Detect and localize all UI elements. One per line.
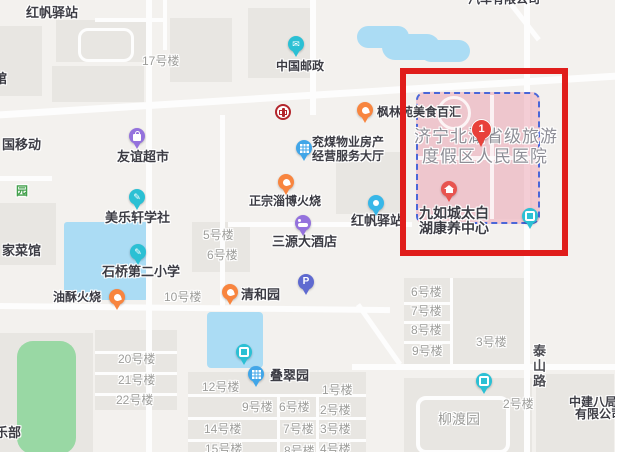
grid-icon [252, 370, 261, 379]
sq-icon [479, 376, 489, 386]
map-label: 1号楼 [322, 384, 353, 398]
sq-icon [239, 347, 249, 357]
map-label: 清和园 [241, 288, 280, 303]
map-label: 7号楼 [411, 305, 442, 319]
map-canvas[interactable]: 红帆驿站17号楼馆中国邮政汽车有限公司枫林苑美食百汇国移动友谊超市兖煤物业房产经… [0, 0, 622, 455]
food-icon [113, 293, 122, 302]
map-label: 兖煤物业房产 [312, 136, 384, 150]
map-label: 9号楼 [242, 401, 273, 415]
boc-icon [282, 108, 285, 117]
bag-icon [133, 134, 141, 141]
map-label: 5号楼 [203, 229, 234, 243]
map-label: 21号楼 [118, 374, 155, 388]
map-label: 6号楼 [207, 249, 238, 263]
grid-icon [300, 144, 309, 153]
dot-icon [373, 200, 379, 206]
highlight-box [400, 68, 568, 256]
map-label: 叠翠园 [270, 369, 309, 384]
map-label: 8号楼 [411, 324, 442, 338]
map-label: 汽车有限公司 [468, 0, 540, 7]
map-label: 3号楼 [320, 423, 351, 437]
map-label: 馆 [0, 72, 7, 87]
road [352, 364, 622, 370]
map-block [170, 18, 232, 82]
map-label: 友谊超市 [117, 150, 169, 165]
env-icon: ✉ [292, 40, 300, 49]
map-label: 园 [16, 185, 28, 199]
food-icon [282, 178, 291, 187]
pond [207, 312, 263, 368]
map-label: 中国邮政 [276, 60, 324, 74]
map-label: 乐部 [0, 426, 21, 441]
map-label: 6号楼 [279, 401, 310, 415]
map-label: 7号楼 [283, 423, 314, 437]
food-icon [226, 288, 235, 297]
map-label: 2号楼 [320, 404, 351, 418]
road [220, 115, 225, 311]
lane [316, 394, 319, 455]
road [0, 176, 52, 181]
map-label: 油酥火烧 [53, 291, 101, 305]
bed-icon [298, 223, 308, 227]
lane-loop [78, 28, 134, 62]
food-icon [361, 106, 370, 115]
map-label: 3号楼 [476, 336, 507, 350]
map-label: 2号楼 [503, 398, 534, 412]
road [95, 18, 165, 22]
map-label: 红帆驿站 [26, 6, 78, 21]
road [310, 0, 316, 115]
map-label: 经营服务大厅 [312, 150, 384, 164]
map-label: 泰山路 [530, 344, 545, 389]
lane [450, 278, 453, 364]
map-label: 国移动 [2, 138, 41, 153]
map-label: 9号楼 [412, 345, 443, 359]
map-label: 22号楼 [116, 394, 153, 408]
P-icon: P [303, 277, 310, 287]
map-label: 17号楼 [142, 55, 179, 69]
map-label: 柳渡园 [438, 411, 480, 427]
map-label: 家菜馆 [2, 244, 41, 259]
map-label: 20号楼 [118, 353, 155, 367]
page-margin [615, 0, 622, 455]
pencil-icon: ✎ [134, 248, 142, 257]
map-label: 14号楼 [204, 423, 241, 437]
lake [420, 40, 470, 62]
map-block [52, 66, 144, 102]
map-label: 12号楼 [202, 381, 239, 395]
map-label: 6号楼 [411, 286, 442, 300]
map-label: 10号楼 [164, 291, 201, 305]
park-area [17, 341, 76, 454]
pencil-icon: ✎ [133, 193, 141, 202]
road [163, 0, 167, 50]
